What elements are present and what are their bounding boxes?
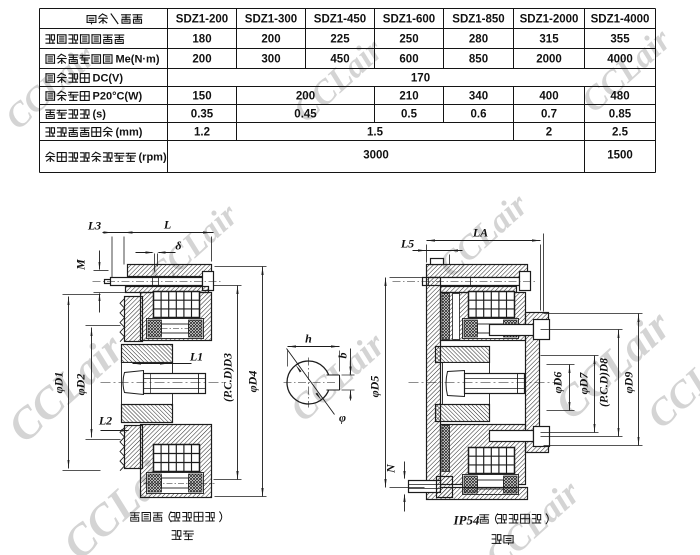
svg-text:CCLair: CCLair bbox=[0, 323, 134, 452]
svg-text:300: 300 bbox=[261, 54, 280, 66]
svg-text:δ: δ bbox=[175, 239, 181, 253]
svg-text:0.5: 0.5 bbox=[401, 109, 418, 121]
svg-text:DC(V): DC(V) bbox=[93, 73, 124, 85]
svg-text:φD1: φD1 bbox=[52, 372, 66, 394]
svg-text:(mm): (mm) bbox=[116, 127, 143, 139]
svg-text:210: 210 bbox=[399, 91, 418, 103]
svg-text:(P.C.D)D3: (P.C.D)D3 bbox=[223, 353, 235, 402]
svg-text:2.5: 2.5 bbox=[612, 127, 629, 139]
svg-text:0.7: 0.7 bbox=[541, 109, 557, 121]
svg-text:IP54: IP54 bbox=[453, 513, 481, 528]
svg-text:φD4: φD4 bbox=[246, 371, 260, 393]
svg-text:280: 280 bbox=[469, 34, 488, 46]
svg-text:SDZ1-200: SDZ1-200 bbox=[176, 14, 228, 26]
svg-text:b: b bbox=[336, 353, 350, 359]
svg-text:400: 400 bbox=[539, 91, 558, 103]
svg-text:φD2: φD2 bbox=[74, 374, 88, 396]
svg-text:250: 250 bbox=[399, 34, 418, 46]
svg-text:3000: 3000 bbox=[363, 150, 389, 162]
svg-text:2: 2 bbox=[546, 127, 552, 139]
svg-text:SDZ1-850: SDZ1-850 bbox=[452, 14, 504, 26]
svg-text:SDZ1-2000: SDZ1-2000 bbox=[520, 14, 579, 26]
svg-text:2000: 2000 bbox=[536, 54, 562, 66]
svg-text:SDZ1-300: SDZ1-300 bbox=[245, 14, 297, 26]
svg-text:φD7: φD7 bbox=[577, 372, 591, 395]
svg-text:φ: φ bbox=[339, 411, 346, 425]
svg-text:L5: L5 bbox=[400, 237, 414, 251]
svg-text:225: 225 bbox=[330, 34, 350, 46]
svg-text:0.85: 0.85 bbox=[609, 109, 632, 121]
svg-text:SDZ1-4000: SDZ1-4000 bbox=[591, 14, 650, 26]
svg-text:φD9: φD9 bbox=[622, 372, 636, 394]
svg-text:LA: LA bbox=[472, 226, 488, 240]
svg-text:L2: L2 bbox=[98, 414, 112, 428]
svg-text:Me(N·m): Me(N·m) bbox=[116, 54, 160, 66]
svg-text:200: 200 bbox=[261, 34, 280, 46]
svg-text:4000: 4000 bbox=[607, 54, 633, 66]
svg-text:0.35: 0.35 bbox=[191, 109, 214, 121]
svg-text:0.6: 0.6 bbox=[471, 109, 487, 121]
svg-text:h: h bbox=[305, 332, 312, 346]
svg-text:1.2: 1.2 bbox=[194, 127, 210, 139]
svg-text:850: 850 bbox=[469, 54, 488, 66]
svg-text:L1: L1 bbox=[189, 350, 203, 364]
svg-text:M: M bbox=[74, 259, 88, 271]
svg-text:SDZ1-600: SDZ1-600 bbox=[383, 14, 435, 26]
svg-text:200: 200 bbox=[296, 91, 315, 103]
svg-text:180: 180 bbox=[192, 34, 211, 46]
svg-text:0.45: 0.45 bbox=[294, 109, 317, 121]
svg-text:φD5: φD5 bbox=[368, 376, 382, 398]
svg-text:1500: 1500 bbox=[607, 150, 633, 162]
svg-text:1.5: 1.5 bbox=[367, 127, 384, 139]
svg-text:200: 200 bbox=[192, 54, 211, 66]
svg-text:600: 600 bbox=[399, 54, 418, 66]
svg-text:355: 355 bbox=[610, 34, 630, 46]
svg-text:(P.C.D)D8: (P.C.D)D8 bbox=[599, 358, 611, 407]
svg-text:150: 150 bbox=[192, 91, 211, 103]
svg-text:315: 315 bbox=[539, 34, 559, 46]
svg-text:(rpm): (rpm) bbox=[139, 152, 167, 164]
svg-text:450: 450 bbox=[330, 54, 349, 66]
svg-text:φD6: φD6 bbox=[551, 372, 565, 394]
svg-text:340: 340 bbox=[469, 91, 488, 103]
svg-text:SDZ1-450: SDZ1-450 bbox=[314, 14, 366, 26]
svg-text:L3: L3 bbox=[87, 219, 101, 233]
svg-text:170: 170 bbox=[411, 73, 430, 85]
svg-text:P20°C(W): P20°C(W) bbox=[93, 91, 143, 103]
svg-text:L: L bbox=[163, 218, 171, 232]
svg-text:480: 480 bbox=[610, 91, 629, 103]
svg-text:(s): (s) bbox=[93, 109, 107, 121]
